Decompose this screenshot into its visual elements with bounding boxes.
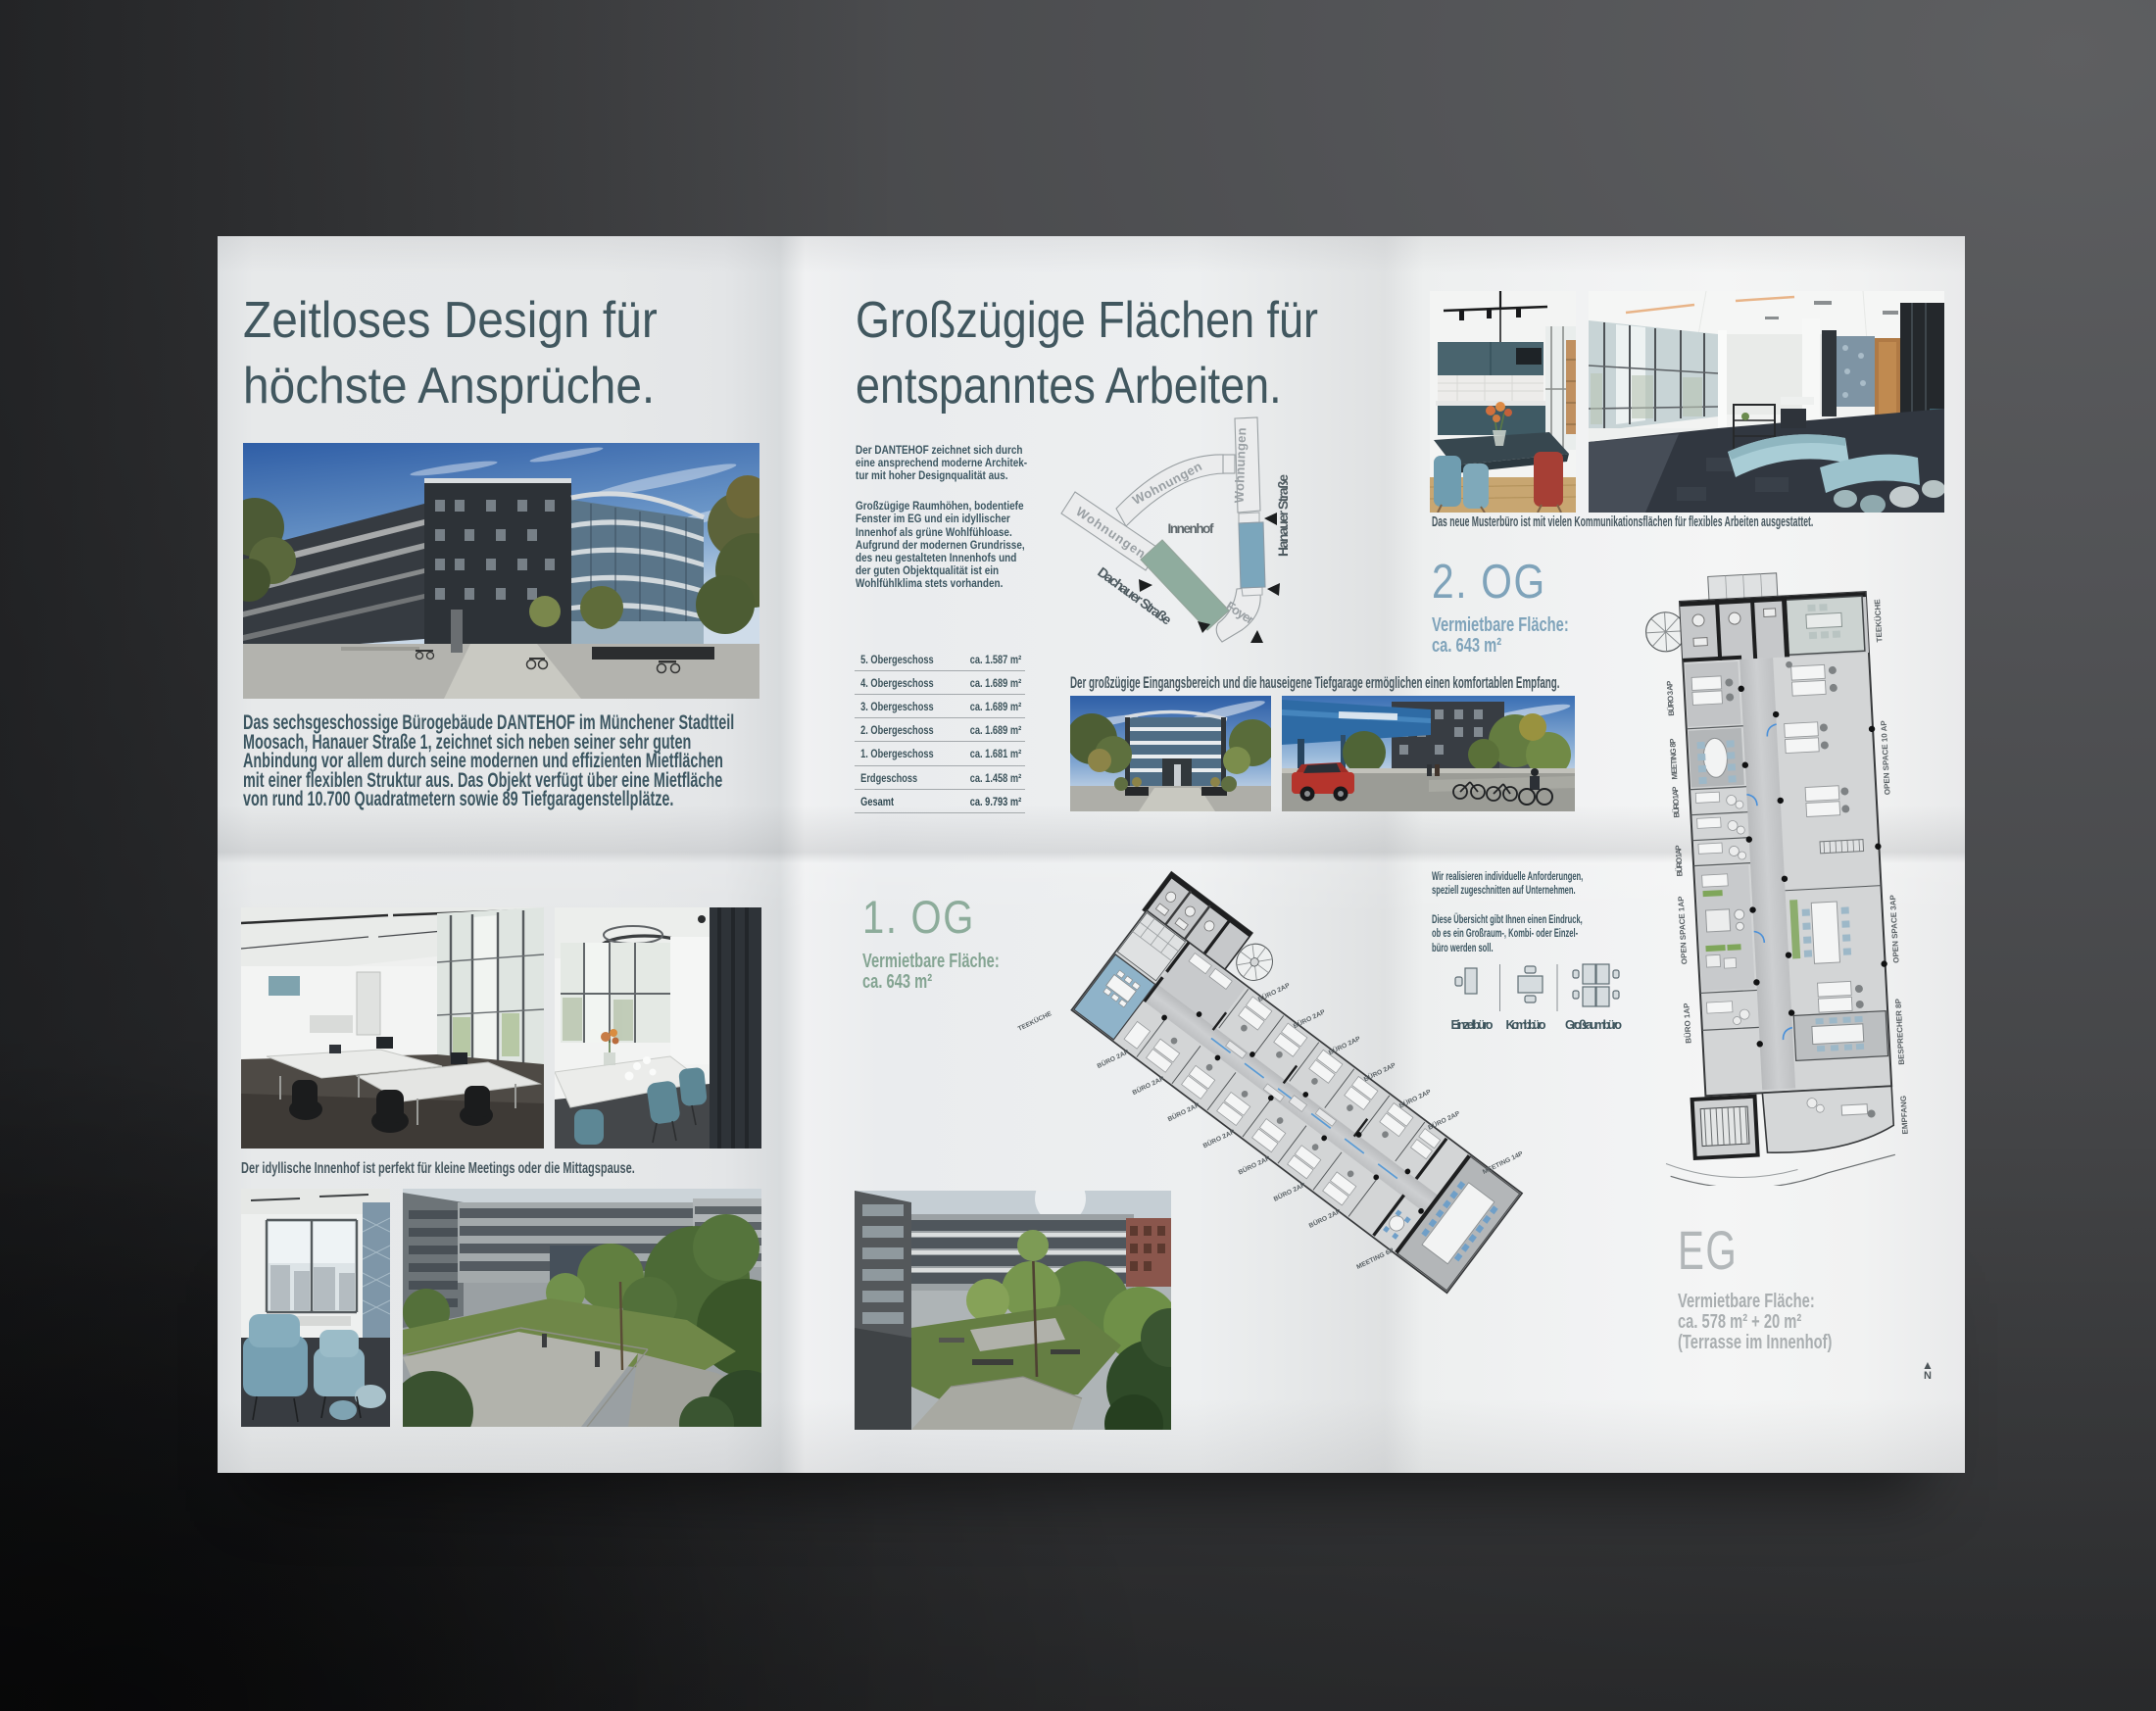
svg-text:OPEN SPACE 3AP: OPEN SPACE 3AP [1888,894,1901,963]
svg-text:MEETING 14P: MEETING 14P [1482,1150,1525,1176]
svg-text:MEETING 6P: MEETING 6P [1355,1247,1395,1271]
svg-text:BÜRO 2AP: BÜRO 2AP [1427,1108,1462,1132]
svg-text:OPEN SPACE 10 AP: OPEN SPACE 10 AP [1880,719,1892,795]
svg-text:BÜRO 2AP: BÜRO 2AP [1362,1060,1397,1084]
svg-text:BÜRO 2AP: BÜRO 2AP [1166,1100,1201,1123]
svg-text:BÜRO 1AP: BÜRO 1AP [1674,845,1685,877]
svg-text:BÜRO 2AP: BÜRO 2AP [1237,1153,1272,1177]
svg-text:BÜRO 3 AP: BÜRO 3 AP [1665,680,1676,716]
svg-text:TEEKÜCHE: TEEKÜCHE [1016,1008,1053,1033]
svg-text:Einzelbüro: Einzelbüro [1451,1018,1494,1032]
svg-text:EMPFANG: EMPFANG [1899,1096,1910,1135]
svg-text:OPEN SPACE 1AP: OPEN SPACE 1AP [1677,896,1690,965]
svg-text:Innenhof: Innenhof [1168,521,1215,536]
svg-text:BÜRO 2AP: BÜRO 2AP [1397,1087,1433,1110]
svg-text:BÜRO 2AP: BÜRO 2AP [1307,1206,1343,1230]
svg-text:BÜRO 2AP: BÜRO 2AP [1201,1127,1237,1150]
svg-text:Hanauer Straße: Hanauer Straße [1275,474,1291,557]
svg-text:BÜRO 2AP: BÜRO 2AP [1327,1034,1362,1057]
svg-text:MEETING 8P: MEETING 8P [1668,738,1679,780]
svg-text:Wohnungen: Wohnungen [1130,459,1204,508]
svg-text:BÜRO 1AP: BÜRO 1AP [1671,786,1682,818]
svg-text:Großraumbüro: Großraumbüro [1565,1018,1622,1032]
svg-text:BESPRECHER 8P: BESPRECHER 8P [1893,998,1906,1065]
svg-text:Wohnungen: Wohnungen [1232,427,1249,504]
svg-text:BÜRO 1AP: BÜRO 1AP [1682,1002,1692,1044]
svg-text:BÜRO 2AP: BÜRO 2AP [1096,1047,1131,1070]
svg-text:BÜRO 2AP: BÜRO 2AP [1292,1006,1327,1030]
svg-text:Kombibüro: Kombibüro [1506,1018,1546,1032]
svg-text:BÜRO 2AP: BÜRO 2AP [1272,1180,1307,1203]
svg-text:TEEKÜCHE: TEEKÜCHE [1873,599,1884,643]
svg-text:BÜRO 2AP: BÜRO 2AP [1256,980,1292,1003]
svg-text:BÜRO 2AP: BÜRO 2AP [1131,1073,1166,1097]
